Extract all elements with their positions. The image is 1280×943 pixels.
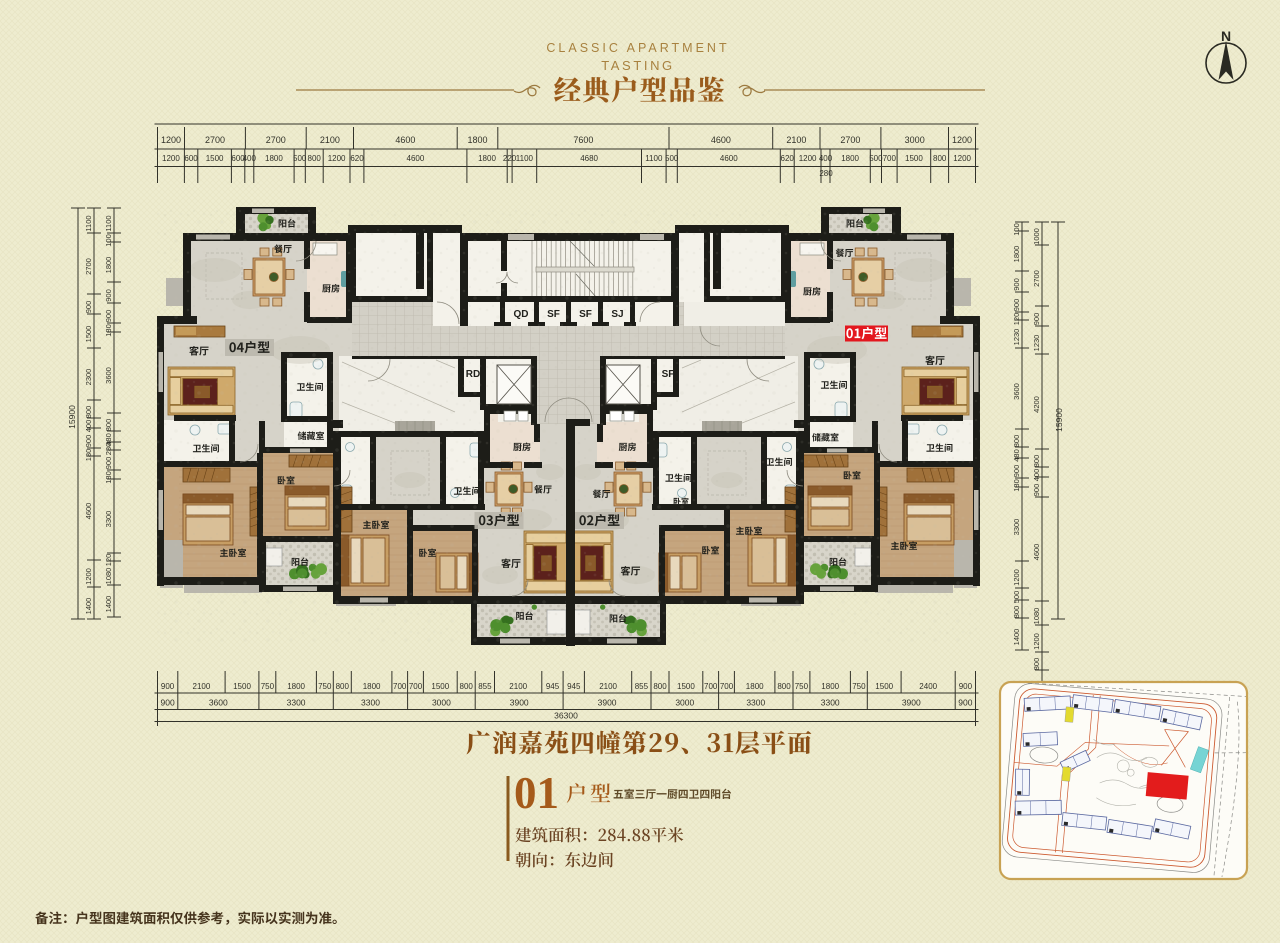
svg-text:1080: 1080: [104, 568, 113, 585]
svg-text:400: 400: [1032, 469, 1041, 482]
svg-text:750: 750: [852, 682, 866, 691]
svg-text:180: 180: [104, 324, 113, 337]
svg-text:500: 500: [293, 154, 307, 163]
svg-text:1500: 1500: [905, 154, 923, 163]
svg-text:800: 800: [336, 682, 350, 691]
svg-text:2700: 2700: [840, 135, 860, 145]
svg-text:280: 280: [104, 443, 113, 456]
svg-text:2700: 2700: [1032, 270, 1041, 287]
svg-text:2100: 2100: [193, 682, 211, 691]
svg-text:1230: 1230: [1032, 335, 1041, 352]
svg-text:SF: SF: [579, 309, 592, 320]
svg-text:3300: 3300: [746, 698, 765, 708]
svg-text:900: 900: [959, 682, 973, 691]
svg-text:3600: 3600: [1012, 383, 1021, 400]
svg-text:1200: 1200: [799, 154, 817, 163]
svg-text:01: 01: [514, 768, 559, 818]
svg-text:800: 800: [1012, 606, 1021, 619]
svg-text:1800: 1800: [287, 682, 305, 691]
svg-text:900: 900: [104, 289, 113, 302]
svg-text:800: 800: [653, 682, 667, 691]
svg-text:180: 180: [1012, 479, 1021, 492]
svg-text:3900: 3900: [510, 698, 529, 708]
svg-text:1200: 1200: [328, 154, 346, 163]
svg-text:2700: 2700: [205, 135, 225, 145]
svg-text:4600: 4600: [407, 154, 425, 163]
svg-text:4600: 4600: [1032, 544, 1041, 561]
svg-text:700: 700: [704, 682, 718, 691]
svg-text:2700: 2700: [266, 135, 286, 145]
svg-text:480: 480: [1012, 449, 1021, 462]
svg-text:500: 500: [869, 154, 883, 163]
svg-text:1500: 1500: [875, 682, 893, 691]
svg-text:700: 700: [720, 682, 734, 691]
svg-text:100: 100: [1012, 223, 1021, 236]
svg-text:900: 900: [104, 457, 113, 470]
svg-text:855: 855: [478, 682, 492, 691]
svg-text:7600: 7600: [573, 135, 593, 145]
svg-text:750: 750: [318, 682, 332, 691]
svg-text:900: 900: [161, 682, 175, 691]
svg-text:945: 945: [546, 682, 560, 691]
svg-text:900: 900: [84, 435, 93, 448]
svg-text:4600: 4600: [720, 154, 738, 163]
svg-text:400: 400: [84, 420, 93, 433]
svg-text:800: 800: [1032, 658, 1041, 671]
svg-text:1200: 1200: [161, 135, 181, 145]
svg-text:SF: SF: [547, 309, 560, 320]
svg-text:220: 220: [503, 154, 517, 163]
svg-text:180: 180: [104, 471, 113, 484]
svg-text:1200: 1200: [162, 154, 180, 163]
svg-text:3300: 3300: [821, 698, 840, 708]
svg-text:900: 900: [1032, 313, 1041, 326]
svg-text:3000: 3000: [675, 698, 694, 708]
svg-text:620: 620: [350, 154, 364, 163]
svg-text:RD: RD: [466, 369, 480, 380]
svg-text:2100: 2100: [509, 682, 527, 691]
svg-text:3300: 3300: [361, 698, 380, 708]
svg-text:1500: 1500: [206, 154, 224, 163]
svg-text:36300: 36300: [554, 711, 578, 721]
svg-text:800: 800: [460, 682, 474, 691]
svg-text:1800: 1800: [265, 154, 283, 163]
svg-text:500: 500: [1012, 591, 1021, 604]
svg-text:900: 900: [161, 698, 175, 708]
svg-text:1100: 1100: [516, 154, 534, 163]
svg-text:800: 800: [104, 419, 113, 432]
svg-text:1200: 1200: [953, 154, 971, 163]
svg-text:4600: 4600: [711, 135, 731, 145]
svg-text:3900: 3900: [902, 698, 921, 708]
svg-text:2400: 2400: [919, 682, 937, 691]
svg-text:1080: 1080: [1032, 608, 1041, 625]
svg-text:1800: 1800: [1012, 246, 1021, 263]
svg-text:2700: 2700: [84, 258, 93, 275]
svg-text:3000: 3000: [905, 135, 925, 145]
svg-text:1500: 1500: [677, 682, 695, 691]
svg-text:620: 620: [781, 154, 795, 163]
svg-text:700: 700: [883, 154, 897, 163]
svg-text:CLASSIC APARTMENT: CLASSIC APARTMENT: [546, 41, 729, 55]
svg-text:N: N: [1221, 28, 1231, 44]
svg-text:1800: 1800: [104, 257, 113, 274]
svg-text:1500: 1500: [233, 682, 251, 691]
svg-text:1800: 1800: [746, 682, 764, 691]
svg-text:700: 700: [409, 682, 423, 691]
svg-text:2100: 2100: [786, 135, 806, 145]
svg-text:1800: 1800: [467, 135, 487, 145]
svg-text:1800: 1800: [841, 154, 859, 163]
svg-text:280: 280: [819, 169, 833, 178]
svg-text:750: 750: [261, 682, 275, 691]
svg-text:2100: 2100: [320, 135, 340, 145]
svg-text:SJ: SJ: [611, 309, 623, 320]
svg-text:900: 900: [1032, 484, 1041, 497]
svg-text:3600: 3600: [104, 367, 113, 384]
svg-text:3300: 3300: [1012, 519, 1021, 536]
svg-text:1800: 1800: [478, 154, 496, 163]
svg-text:4600: 4600: [84, 503, 93, 520]
svg-text:800: 800: [1032, 455, 1041, 468]
svg-text:3900: 3900: [598, 698, 617, 708]
svg-text:3300: 3300: [104, 511, 113, 528]
svg-text:15900: 15900: [1054, 408, 1064, 432]
svg-text:4680: 4680: [580, 154, 598, 163]
svg-text:1200: 1200: [952, 135, 972, 145]
svg-text:2100: 2100: [599, 682, 617, 691]
svg-text:2300: 2300: [84, 369, 93, 386]
svg-text:3000: 3000: [432, 698, 451, 708]
svg-text:500: 500: [665, 154, 679, 163]
svg-text:800: 800: [1012, 435, 1021, 448]
svg-text:900: 900: [958, 698, 972, 708]
svg-text:1800: 1800: [363, 682, 381, 691]
svg-text:3600: 3600: [209, 698, 228, 708]
svg-text:855: 855: [635, 682, 649, 691]
svg-text:15900: 15900: [67, 405, 77, 429]
svg-text:TASTING: TASTING: [601, 58, 675, 73]
svg-text:3300: 3300: [287, 698, 306, 708]
svg-text:945: 945: [567, 682, 581, 691]
svg-text:1400: 1400: [84, 598, 93, 615]
svg-text:1100: 1100: [645, 154, 663, 163]
svg-text:1500: 1500: [431, 682, 449, 691]
svg-text:1230: 1230: [1012, 329, 1021, 346]
svg-text:1800: 1800: [821, 682, 839, 691]
svg-text:1100: 1100: [84, 215, 93, 231]
svg-text:900: 900: [84, 301, 93, 314]
svg-text:800: 800: [308, 154, 322, 163]
svg-text:4600: 4600: [395, 135, 415, 145]
svg-text:900: 900: [1012, 278, 1021, 291]
svg-text:800: 800: [84, 406, 93, 419]
svg-text:100: 100: [104, 234, 113, 247]
svg-text:1400: 1400: [1012, 629, 1021, 646]
svg-text:1400: 1400: [104, 596, 113, 613]
svg-text:4200: 4200: [1032, 396, 1041, 413]
svg-text:750: 750: [795, 682, 809, 691]
svg-text:QD: QD: [514, 309, 529, 320]
svg-text:120: 120: [1012, 313, 1021, 326]
svg-text:600: 600: [184, 154, 198, 163]
svg-text:400: 400: [243, 154, 257, 163]
svg-text:120: 120: [104, 554, 113, 567]
svg-text:180: 180: [84, 449, 93, 462]
svg-text:1000: 1000: [1032, 228, 1041, 245]
svg-text:800: 800: [777, 682, 791, 691]
svg-text:1200: 1200: [1032, 633, 1041, 650]
svg-text:SF: SF: [662, 369, 675, 380]
svg-text:1200: 1200: [1012, 569, 1021, 586]
svg-text:1500: 1500: [84, 326, 93, 343]
svg-text:900: 900: [1012, 465, 1021, 478]
svg-text:1100: 1100: [104, 215, 113, 231]
svg-text:800: 800: [933, 154, 947, 163]
svg-text:900: 900: [1012, 299, 1021, 312]
svg-text:700: 700: [393, 682, 407, 691]
svg-text:1200: 1200: [84, 568, 93, 585]
svg-text:400: 400: [819, 154, 833, 163]
svg-text:900: 900: [104, 310, 113, 323]
